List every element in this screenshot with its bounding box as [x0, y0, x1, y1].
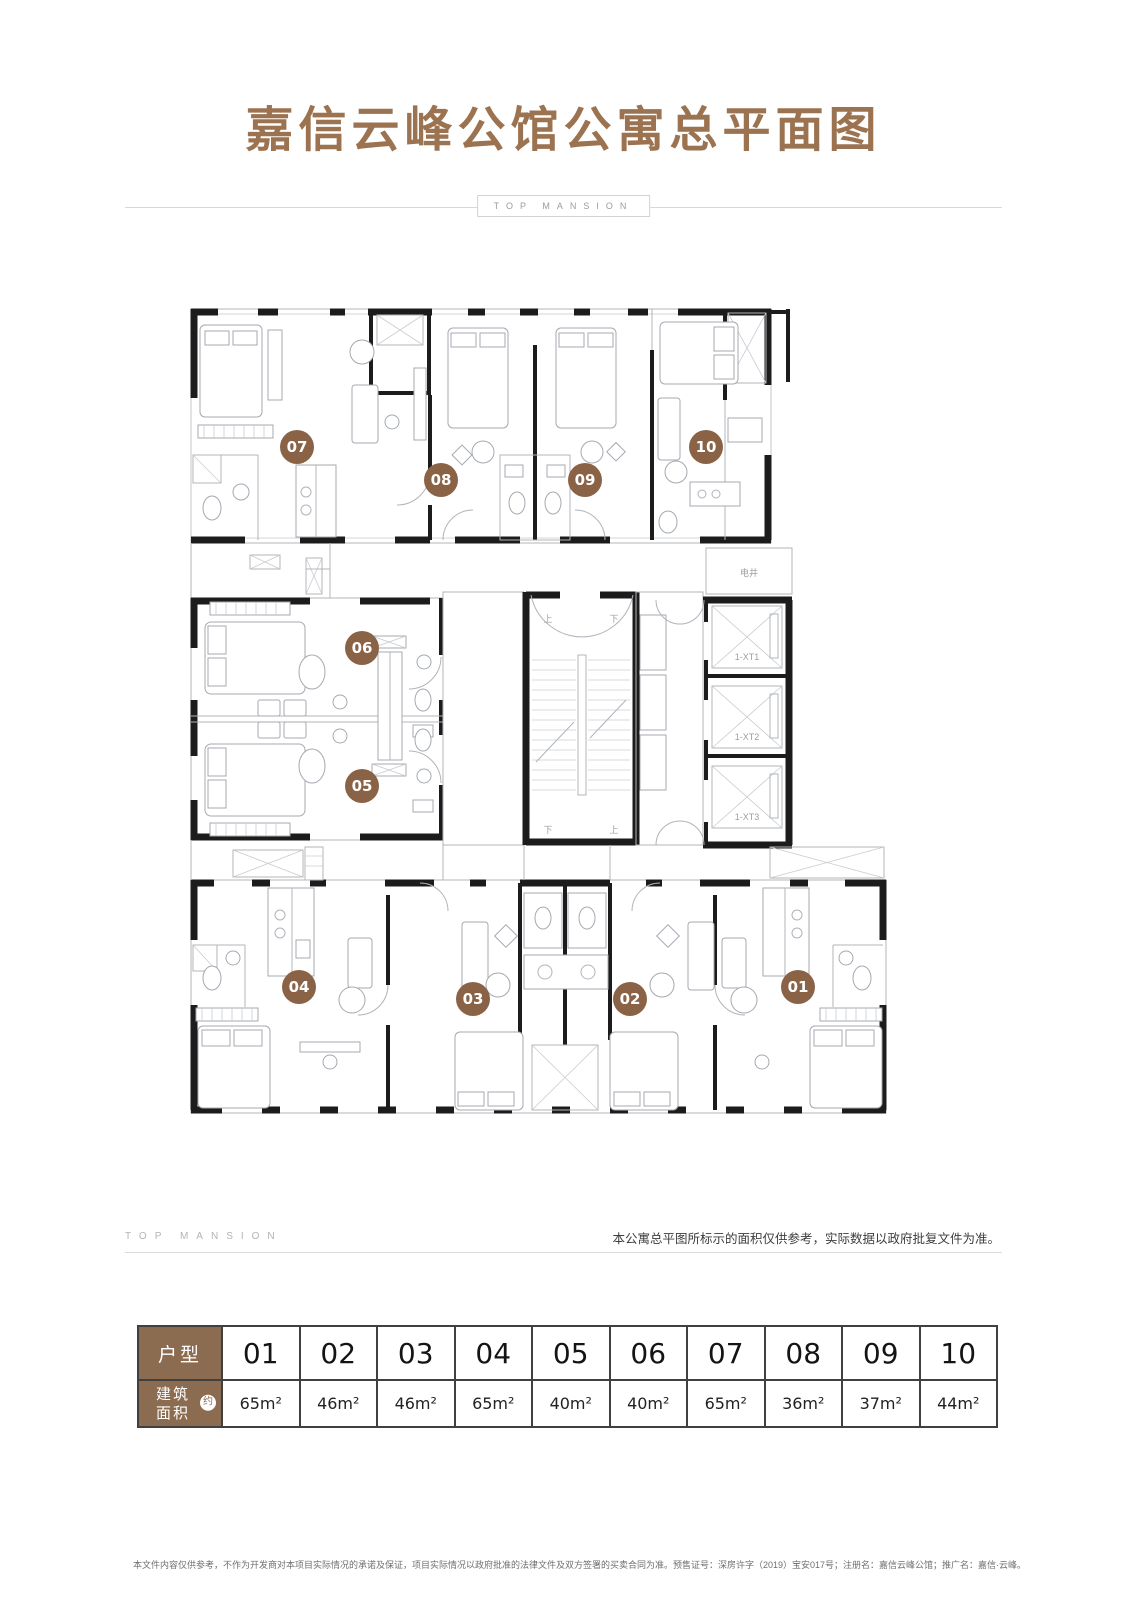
unit-cell-02: 02: [300, 1326, 378, 1380]
area-cell-02: 46m²: [300, 1380, 378, 1427]
area-cell-10: 44m²: [920, 1380, 998, 1427]
svg-text:03: 03: [463, 990, 484, 1008]
brand-badge: TOP MANSION: [477, 195, 651, 217]
unit-marker-10: 10: [689, 430, 723, 464]
plan-disclaimer: 本公寓总平图所标示的面积仅供参考，实际数据以政府批复文件为准。: [612, 1228, 1000, 1247]
approx-badge: 约: [200, 1394, 216, 1410]
unit-marker-03: 03: [456, 982, 490, 1016]
elevator-3-label: 1-XT3: [735, 812, 760, 822]
svg-text:04: 04: [289, 978, 310, 996]
stair-down-label-2: 下: [543, 825, 552, 835]
floorplan: 上 下 下 上 1-XT1 1-XT2 1-XT3 电井: [185, 300, 895, 1122]
elevator-2-label: 1-XT2: [735, 732, 760, 742]
svg-text:09: 09: [575, 471, 596, 489]
unit-marker-06: 06: [345, 631, 379, 665]
unit-type-header: 户型: [138, 1326, 222, 1380]
svg-text:01: 01: [788, 978, 809, 996]
area-header-text: 建筑面积: [156, 1385, 190, 1423]
middle-block: [191, 598, 443, 840]
stair-core: 上 下 下 上: [443, 592, 666, 845]
table-row-unit-type: 户型 01 02 03 04 05 06 07 08 09 10: [138, 1326, 997, 1380]
legal-footnote: 本文件内容仅供参考，不作为开发商对本项目实际情况的承诺及保证，项目实际情况以政府…: [133, 1558, 1093, 1571]
area-cell-06: 40m²: [610, 1380, 688, 1427]
elevator-1-label: 1-XT1: [735, 652, 760, 662]
floorplan-svg: 上 下 下 上 1-XT1 1-XT2 1-XT3 电井: [185, 300, 895, 1122]
area-cell-07: 65m²: [687, 1380, 765, 1427]
unit-marker-09: 09: [568, 463, 602, 497]
stair-up-label-2: 上: [609, 825, 618, 835]
unit-marker-01: 01: [781, 970, 815, 1004]
unit-marker-08: 08: [424, 463, 458, 497]
unit-marker-07: 07: [280, 430, 314, 464]
unit-marker-04: 04: [282, 970, 316, 1004]
unit-cell-08: 08: [765, 1326, 843, 1380]
svg-text:08: 08: [431, 471, 452, 489]
brand-footer: TOP MANSION: [125, 1231, 283, 1242]
unit-marker-05: 05: [345, 769, 379, 803]
area-cell-04: 65m²: [455, 1380, 533, 1427]
unit-area-table: 户型 01 02 03 04 05 06 07 08 09 10 建筑面积 约 …: [137, 1325, 998, 1428]
poster-page: { "page_title": "嘉信云峰公馆公寓总平面图", "brand":…: [0, 0, 1127, 1600]
svg-text:10: 10: [696, 438, 717, 456]
svg-text:05: 05: [352, 777, 373, 795]
svg-text:02: 02: [620, 990, 641, 1008]
unit-cell-06: 06: [610, 1326, 688, 1380]
area-header: 建筑面积 约: [138, 1380, 222, 1427]
unit-cell-01: 01: [222, 1326, 300, 1380]
area-cell-08: 36m²: [765, 1380, 843, 1427]
area-cell-05: 40m²: [532, 1380, 610, 1427]
page-title: 嘉信云峰公馆公寓总平面图: [0, 90, 1127, 160]
stair-up-label: 上: [543, 614, 552, 624]
unit-cell-09: 09: [842, 1326, 920, 1380]
area-cell-09: 37m²: [842, 1380, 920, 1427]
svg-text:06: 06: [352, 639, 373, 657]
table-row-area: 建筑面积 约 65m² 46m² 46m² 65m² 40m² 40m² 65m…: [138, 1380, 997, 1427]
unit-cell-04: 04: [455, 1326, 533, 1380]
area-cell-01: 65m²: [222, 1380, 300, 1427]
shaft-label: 电井: [740, 567, 758, 578]
bottom-divider-line: [125, 1252, 1002, 1253]
unit-marker-02: 02: [613, 982, 647, 1016]
unit-cell-03: 03: [377, 1326, 455, 1380]
svg-text:07: 07: [287, 438, 308, 456]
unit-cell-10: 10: [920, 1326, 998, 1380]
top-divider-line: TOP MANSION: [125, 207, 1002, 208]
unit-cell-07: 07: [687, 1326, 765, 1380]
area-cell-03: 46m²: [377, 1380, 455, 1427]
stair-down-label: 下: [609, 614, 618, 624]
unit-cell-05: 05: [532, 1326, 610, 1380]
